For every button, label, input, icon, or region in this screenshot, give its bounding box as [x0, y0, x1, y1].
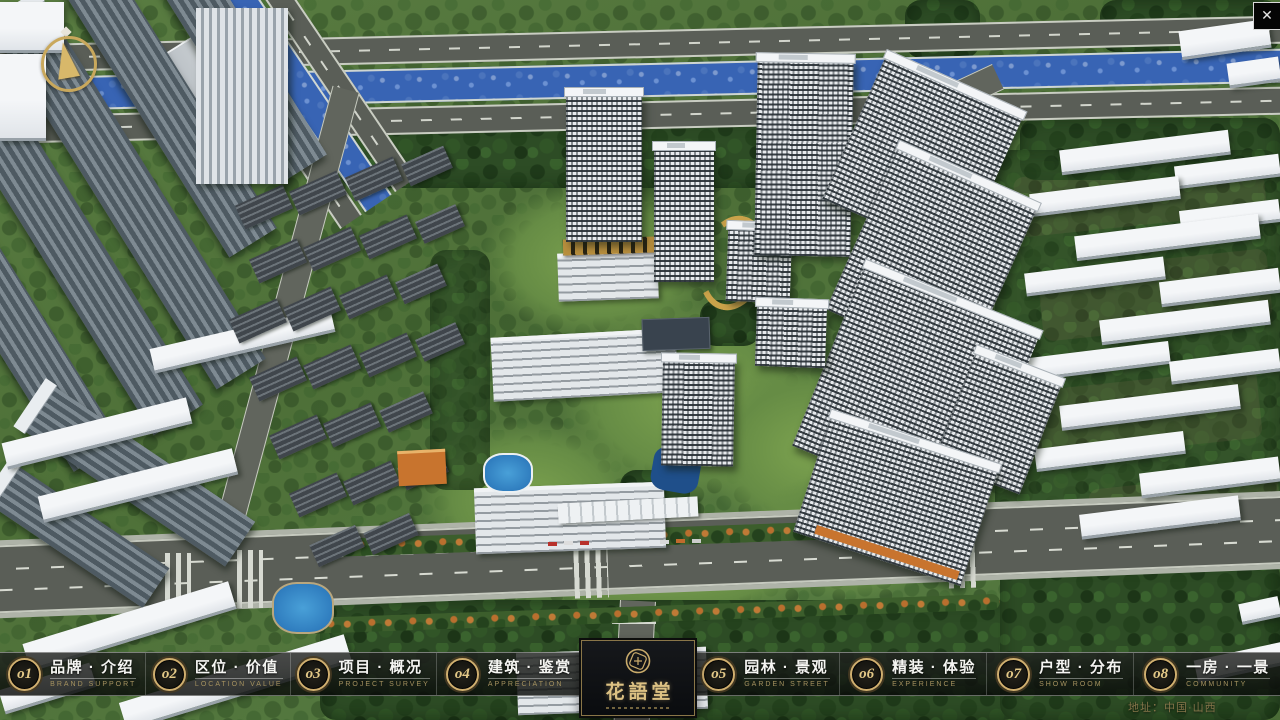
crosswalk [237, 550, 263, 608]
nav-label-en: PROJECT SURVEY [339, 681, 430, 688]
nav-text: 建筑 · 鉴赏 APPRECIATION [488, 660, 572, 688]
nav-text: 项目 · 概况 PROJECT SURVEY [339, 660, 430, 688]
nav-label-en: COMMUNITY [1186, 681, 1270, 688]
car [580, 541, 589, 545]
nav-badge-07: o7 [997, 658, 1030, 691]
nav-item-garden[interactable]: o5 园林 · 景观 GARDEN STREET [693, 653, 839, 695]
nav-label-en: GARDEN STREET [744, 681, 830, 688]
nav-text: 户型 · 分布 SHOW ROOM [1039, 660, 1123, 688]
masterplan-3d-view[interactable]: ✕ o1 品牌 · 介绍 BRAND SUPPORT o2 区位 · 价值 LO… [0, 0, 1280, 720]
nav-badge-08: o8 [1144, 658, 1177, 691]
tower [661, 357, 735, 466]
nav-item-interior[interactable]: o6 精装 · 体验 EXPERIENCE [839, 653, 986, 695]
tower [654, 146, 714, 282]
logo-title: 花語堂 [601, 677, 674, 704]
nav-item-architecture[interactable]: o4 建筑 · 鉴赏 APPRECIATION [436, 653, 582, 695]
pool [272, 582, 334, 634]
car [548, 542, 557, 546]
nav-label-zh: 精装 · 体验 [892, 660, 976, 675]
nav-text: 一房 · 一景 COMMUNITY [1186, 660, 1270, 688]
nav-badge-03: o3 [297, 658, 330, 691]
nav-label-zh: 一房 · 一景 [1186, 660, 1270, 675]
nav-item-views[interactable]: o8 一房 · 一景 COMMUNITY [1133, 653, 1280, 695]
car [692, 539, 701, 543]
nav-badge-04: o4 [446, 658, 479, 691]
divider [50, 678, 136, 679]
nav-label-zh: 区位 · 价值 [195, 660, 283, 675]
divider [195, 678, 283, 679]
kindergarten-building [397, 449, 447, 486]
nav-label-zh: 建筑 · 鉴赏 [488, 660, 572, 675]
car [660, 540, 669, 544]
nav-text: 区位 · 价值 LOCATION VALUE [195, 660, 283, 688]
divider [892, 678, 976, 679]
tower [566, 92, 642, 242]
compass[interactable] [40, 30, 96, 90]
nav-label-zh: 项目 · 概况 [339, 660, 430, 675]
car [564, 541, 573, 545]
nav-badge-05: o5 [702, 658, 735, 691]
close-icon: ✕ [1261, 7, 1273, 23]
sales-center [641, 317, 710, 351]
city-tower [196, 8, 288, 184]
tower [755, 302, 827, 368]
nav-label-zh: 户型 · 分布 [1039, 660, 1123, 675]
forest-patch [1000, 560, 1280, 720]
nav-label-en: SHOW ROOM [1039, 681, 1123, 688]
nav-label-en: EXPERIENCE [892, 681, 976, 688]
nav-label-en: BRAND SUPPORT [50, 681, 136, 688]
address-text: 地址：中国·山西 [1128, 699, 1217, 715]
nav-text: 品牌 · 介绍 BRAND SUPPORT [50, 660, 136, 688]
bottom-nav-right: o5 园林 · 景观 GARDEN STREET o6 精装 · 体验 EXPE… [693, 652, 1280, 696]
divider [1039, 678, 1123, 679]
car [676, 539, 685, 543]
pool [483, 453, 533, 493]
tower [754, 57, 853, 257]
nav-text: 精装 · 体验 EXPERIENCE [892, 660, 976, 688]
nav-text: 园林 · 景观 GARDEN STREET [744, 660, 830, 688]
logo-panel[interactable]: 花語堂 [581, 640, 695, 716]
nav-label-en: LOCATION VALUE [195, 681, 283, 688]
nav-item-project[interactable]: o3 项目 · 概况 PROJECT SURVEY [290, 653, 436, 695]
nav-badge-06: o6 [850, 658, 883, 691]
divider [1186, 678, 1270, 679]
nav-label-zh: 品牌 · 介绍 [50, 660, 136, 675]
nav-item-floorplans[interactable]: o7 户型 · 分布 SHOW ROOM [986, 653, 1133, 695]
nav-badge-01: o1 [8, 658, 41, 691]
divider [744, 678, 830, 679]
nav-badge-02: o2 [153, 658, 186, 691]
nav-label-zh: 园林 · 景观 [744, 660, 830, 675]
nav-label-en: APPRECIATION [488, 681, 572, 688]
divider [339, 678, 430, 679]
nav-item-location[interactable]: o2 区位 · 价值 LOCATION VALUE [145, 653, 291, 695]
bottom-nav-left: o1 品牌 · 介绍 BRAND SUPPORT o2 区位 · 价值 LOCA… [0, 652, 581, 696]
midrise-slab [557, 250, 659, 301]
nav-item-brand[interactable]: o1 品牌 · 介绍 BRAND SUPPORT [0, 653, 145, 695]
seal-emblem-icon [625, 648, 651, 674]
divider [488, 678, 572, 679]
close-button[interactable]: ✕ [1253, 2, 1280, 30]
logo-subtext [606, 707, 670, 709]
